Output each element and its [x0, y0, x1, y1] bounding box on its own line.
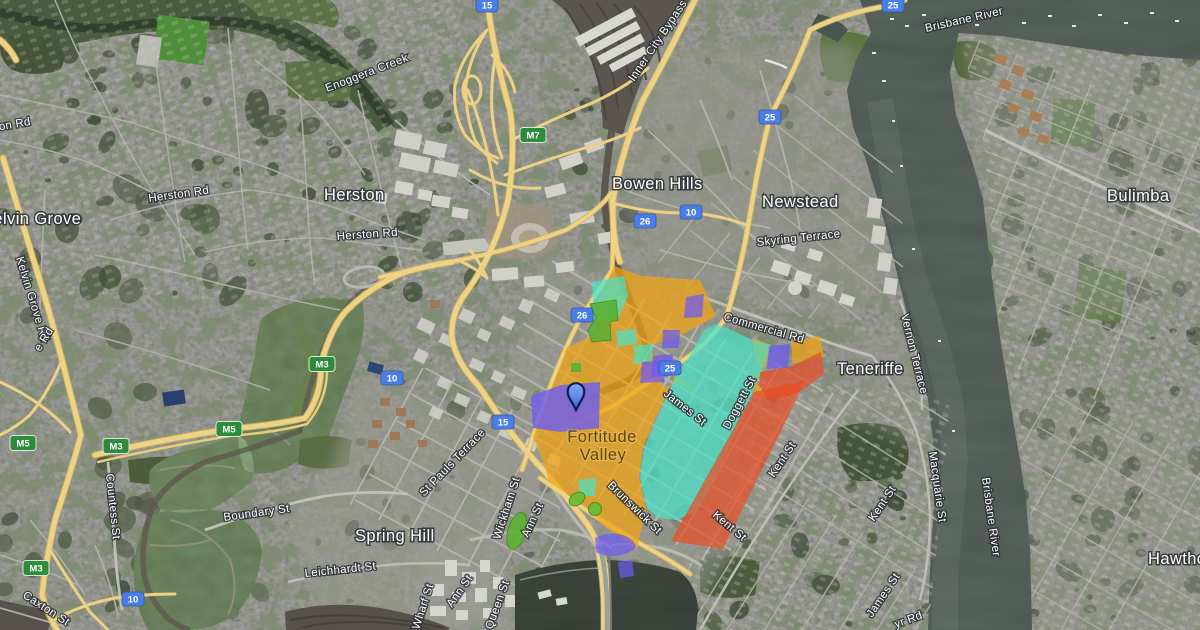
svg-text:25: 25	[665, 364, 676, 375]
svg-text:10: 10	[686, 208, 697, 219]
svg-text:25: 25	[888, 1, 899, 12]
svg-text:Valley: Valley	[580, 446, 627, 464]
svg-text:Bowen Hills: Bowen Hills	[612, 175, 703, 193]
svg-text:Fortitude: Fortitude	[567, 428, 637, 446]
svg-text:M5: M5	[222, 425, 236, 436]
svg-text:Newstead: Newstead	[762, 193, 839, 211]
svg-text:Teneriffe: Teneriffe	[837, 360, 904, 378]
svg-text:Spring Hill: Spring Hill	[355, 527, 435, 545]
svg-text:M3: M3	[315, 360, 328, 371]
svg-text:26: 26	[640, 217, 651, 228]
svg-text:Bulimba: Bulimba	[1107, 187, 1170, 205]
svg-text:M5: M5	[16, 439, 30, 450]
svg-text:M3: M3	[29, 564, 42, 575]
svg-text:Hawthor: Hawthor	[1148, 550, 1200, 568]
svg-text:Herston: Herston	[324, 186, 385, 204]
svg-text:10: 10	[128, 595, 139, 606]
svg-text:M7: M7	[526, 131, 539, 142]
svg-text:15: 15	[498, 418, 509, 429]
svg-text:26: 26	[577, 311, 588, 322]
svg-text:10: 10	[387, 374, 398, 385]
svg-text:M3: M3	[109, 442, 122, 453]
svg-text:Kelvin Grove: Kelvin Grove	[0, 210, 81, 228]
svg-text:25: 25	[765, 113, 776, 124]
svg-text:15: 15	[482, 1, 493, 12]
